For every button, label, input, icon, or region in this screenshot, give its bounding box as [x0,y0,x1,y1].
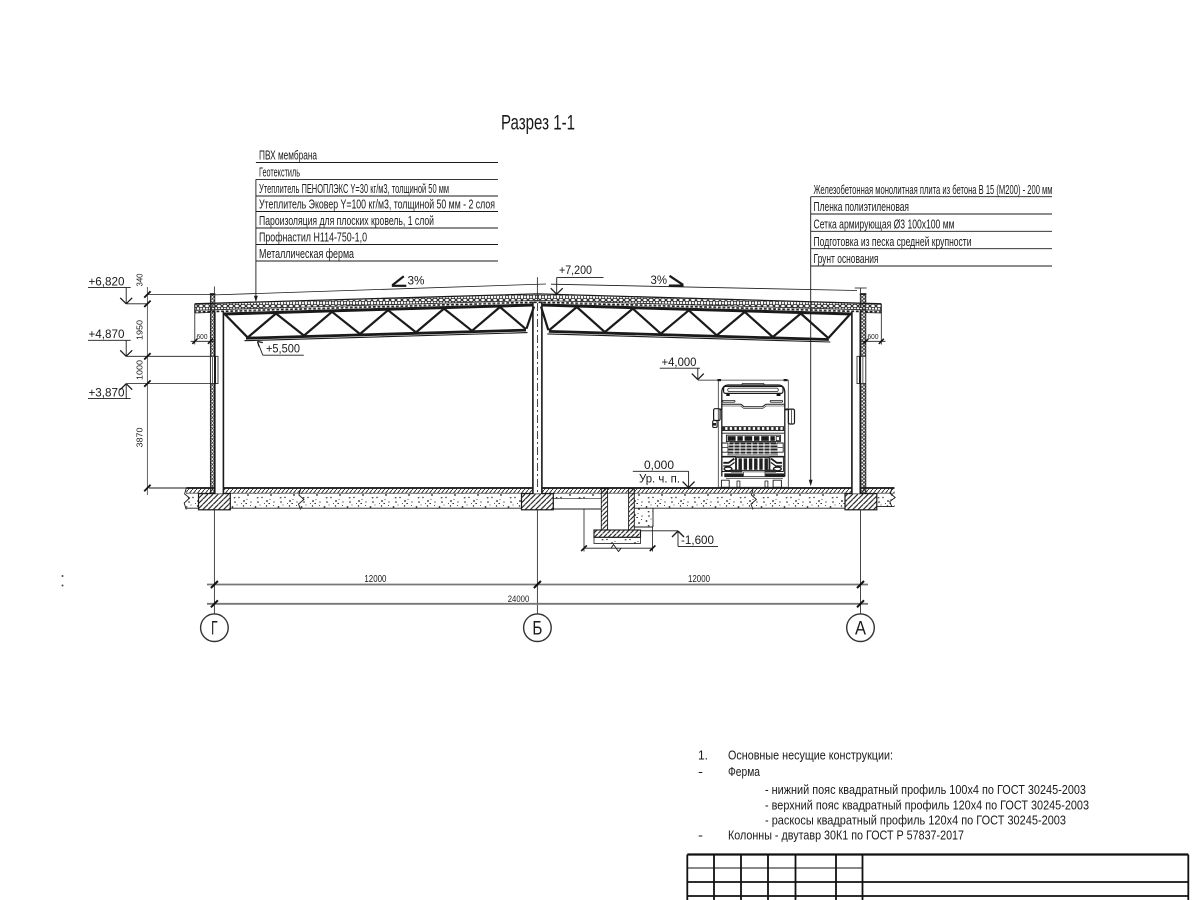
svg-text:Металлическая ферма: Металлическая ферма [259,247,354,261]
svg-text:Пароизоляция для плоских крове: Пароизоляция для плоских кровель, 1 слой [259,214,434,228]
svg-text:600: 600 [197,332,208,341]
svg-text:Грунт основания: Грунт основания [814,252,879,266]
svg-text:- раскосы квадратный профиль 1: - раскосы квадратный профиль 120х4 по ГО… [765,813,1066,828]
svg-text:+4,870: +4,870 [89,327,125,341]
svg-text:-: - [698,764,703,779]
svg-text:А: А [855,619,866,640]
svg-text:Сетка армирующая Ø3 100х100 мм: Сетка армирующая Ø3 100х100 мм [814,217,955,231]
svg-text:Утеплитель ПЕНОПЛЭКС Y=30 кг/м: Утеплитель ПЕНОПЛЭКС Y=30 кг/м3, толщино… [259,182,449,196]
svg-text:+7,200: +7,200 [559,263,592,277]
svg-text:12000: 12000 [364,574,386,585]
svg-text:Ферма: Ферма [728,764,761,779]
svg-text:+3,870: +3,870 [89,386,125,400]
svg-text:Геотекстиль: Геотекстиль [259,166,300,180]
svg-text:3870: 3870 [135,427,145,447]
svg-text:- нижний пояс квадратный профи: - нижний пояс квадратный профиль 100х4 п… [765,782,1086,797]
svg-text:1.: 1. [698,748,708,763]
svg-text:24000: 24000 [508,594,530,605]
svg-text:+4,000: +4,000 [662,355,697,369]
svg-text:Колонны - двутавр 30К1 по ГОСТ: Колонны - двутавр 30К1 по ГОСТ Р 57837-2… [728,828,964,843]
svg-text:ПВХ мембрана: ПВХ мембрана [259,149,317,163]
svg-text:Пленка полиэтиленовая: Пленка полиэтиленовая [814,200,910,214]
svg-text:3%: 3% [651,273,668,287]
svg-text:Утеплитель Эковер Y=100 кг/м3,: Утеплитель Эковер Y=100 кг/м3, толщиной … [259,198,495,212]
svg-text:+6,820: +6,820 [89,274,125,288]
svg-text:+5,500: +5,500 [266,342,300,356]
svg-text:Б: Б [532,619,542,640]
svg-text:Разрез 1-1: Разрез 1-1 [501,112,575,135]
svg-text:Железобетонная монолитная плит: Железобетонная монолитная плита из бетон… [814,183,1053,197]
svg-text:Профнастил Н114-750-1,0: Профнастил Н114-750-1,0 [259,231,367,245]
svg-text:12000: 12000 [688,574,710,585]
svg-text:Ур. ч. п.: Ур. ч. п. [639,474,680,486]
svg-text:1000: 1000 [135,360,145,380]
svg-text:-1,600: -1,600 [681,533,714,547]
svg-text:Подготовка из песка средней кр: Подготовка из песка средней крупности [814,235,972,249]
svg-text:3%: 3% [408,274,425,288]
svg-text:0,000: 0,000 [644,458,674,472]
svg-text:600: 600 [868,332,879,341]
svg-text:340: 340 [135,273,145,286]
svg-text:Основные несущие конструкции:: Основные несущие конструкции: [728,748,893,763]
svg-text:1950: 1950 [135,320,145,340]
svg-text:- верхний пояс квадратный проф: - верхний пояс квадратный профиль 120х4 … [765,797,1089,812]
svg-text:Г: Г [211,619,218,640]
svg-text:-: - [698,828,703,843]
